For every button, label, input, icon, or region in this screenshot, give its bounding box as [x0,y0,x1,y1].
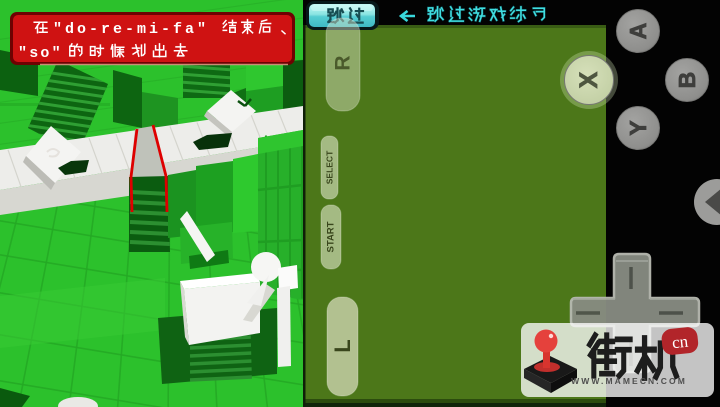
svg-text:X: X [575,71,603,88]
svg-text:cn: cn [671,332,689,353]
svg-text:WWW.MAMECN.COM: WWW.MAMECN.COM [571,376,687,386]
svg-text:L: L [330,339,355,352]
svg-text:B: B [674,72,700,89]
svg-text:START: START [326,221,337,252]
svg-text:R: R [332,55,355,70]
svg-text:"do-re-mi-fa": "do-re-mi-fa" [53,21,209,38]
svg-text:A: A [625,23,651,40]
svg-text:SELECT: SELECT [325,150,335,184]
svg-text:"so": "so" [18,45,63,62]
svg-text:Y: Y [625,120,651,135]
